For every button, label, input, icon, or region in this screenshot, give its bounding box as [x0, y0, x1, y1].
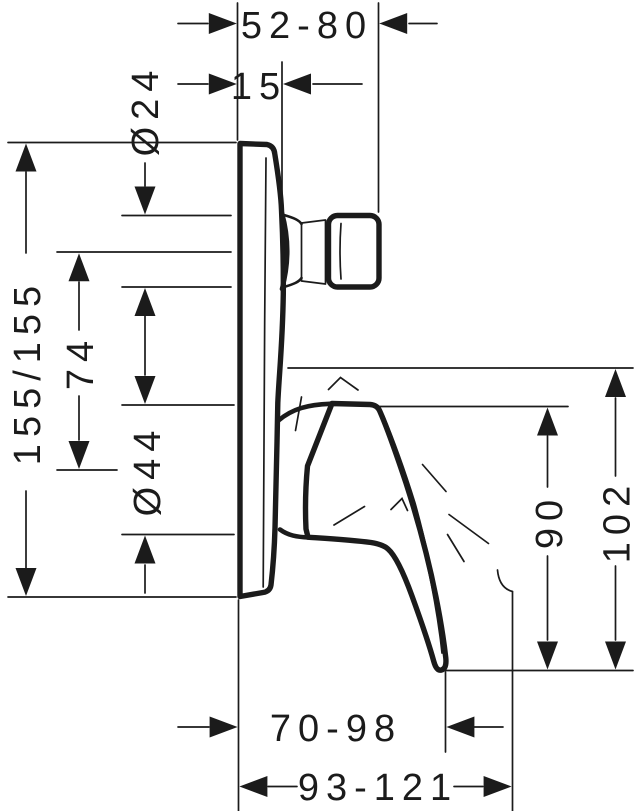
mixer-dimension-drawing: 52-80 15 Ø24 155/155 74 Ø44 90 102 70-98…: [0, 0, 640, 811]
dim-label-stem-diameter: Ø24: [125, 64, 167, 157]
handle-edge-leader-curve: [498, 570, 513, 592]
dim-label-axis-spacing: 74: [60, 334, 102, 390]
dim-label-sleeve-diameter: Ø44: [127, 424, 169, 517]
dim-label-plate-size: 155/155: [7, 279, 49, 465]
dimension-lines: [8, 3, 633, 811]
lever-handle: [279, 404, 446, 671]
dim-label-lever-height: 90: [529, 493, 571, 549]
dim-label-total-depth-range: 93-121: [298, 767, 458, 809]
sleeve-flare-top: [279, 404, 331, 421]
phantom-flare-tick: [296, 397, 302, 431]
handle-body: [306, 404, 446, 671]
dimension-drawing-page: 52-80 15 Ø24 155/155 74 Ø44 90 102 70-98…: [0, 0, 640, 811]
dim-label-stem-offset: 15: [231, 66, 287, 108]
stem-body: [302, 220, 326, 284]
dim-label-lever-depth-range: 70-98: [270, 708, 402, 750]
dim-label-total-height: 102: [597, 479, 639, 563]
connection-stem: [282, 213, 379, 289]
phantom-dash-3: [449, 515, 489, 544]
stem-cap: [329, 216, 380, 288]
dim-label-depth-range-top: 52-80: [241, 5, 373, 47]
phantom-dash-4: [448, 535, 465, 562]
escutcheon-plate: [240, 144, 283, 597]
phantom-dash-2: [423, 465, 447, 492]
phantom-tip-chevron: [329, 378, 359, 391]
stem-cap-bevel: [340, 224, 341, 280]
